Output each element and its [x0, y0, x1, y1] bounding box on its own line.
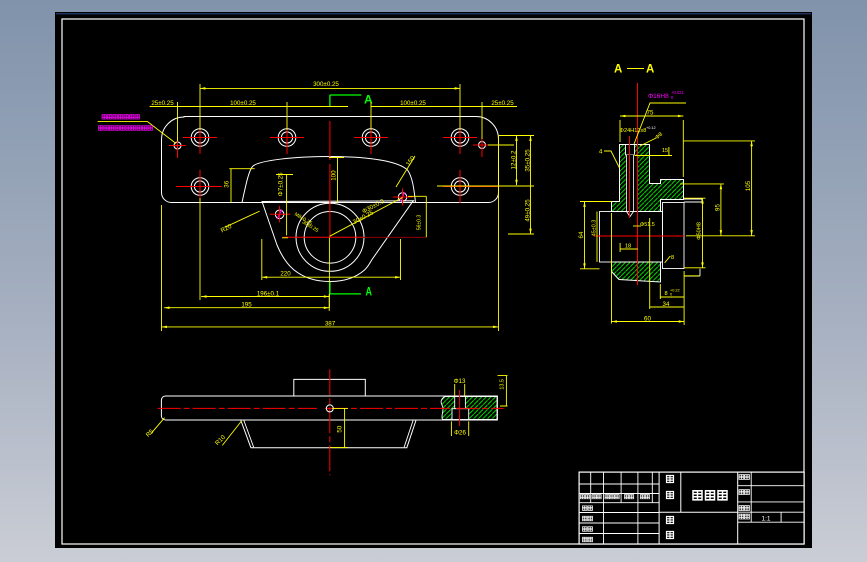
svg-text:49±0.25: 49±0.25	[525, 199, 532, 222]
svg-text:13.5: 13.5	[499, 379, 505, 390]
svg-text:Φ24H12x8: Φ24H12x8	[620, 128, 647, 134]
svg-text:36: 36	[224, 180, 231, 187]
svg-text:12±0.2: 12±0.2	[511, 150, 518, 169]
svg-text:Φ50H8: Φ50H8	[697, 222, 703, 240]
svg-text:64: 64	[578, 231, 585, 238]
svg-text:A: A	[366, 285, 373, 299]
svg-text:A: A	[614, 64, 622, 76]
svg-text:8: 8	[664, 291, 667, 297]
svg-text:34: 34	[663, 301, 670, 308]
svg-text:Φ26: Φ26	[454, 430, 466, 437]
svg-text:Φ13: Φ13	[454, 378, 466, 385]
svg-text:1:1: 1:1	[761, 515, 770, 522]
svg-text:Φ16H8: Φ16H8	[648, 93, 669, 100]
svg-text:300±0.25: 300±0.25	[313, 81, 339, 88]
svg-text:+0.12: +0.12	[646, 126, 656, 130]
svg-text:100±0.25: 100±0.25	[230, 100, 256, 107]
svg-text:25±0.25: 25±0.25	[151, 100, 174, 107]
svg-text:100±0.25: 100±0.25	[400, 100, 426, 107]
svg-text:A: A	[646, 64, 654, 76]
svg-text:Φ51.5: Φ51.5	[640, 222, 655, 228]
svg-text:95: 95	[714, 204, 721, 211]
svg-text:60: 60	[644, 315, 651, 322]
svg-text:196±0.1: 196±0.1	[257, 290, 280, 297]
svg-text:50: 50	[337, 425, 344, 432]
svg-text:18: 18	[625, 244, 631, 250]
svg-text:A: A	[364, 93, 373, 107]
svg-text:105: 105	[745, 180, 752, 191]
svg-text:195: 195	[241, 302, 252, 309]
svg-text:75: 75	[647, 110, 654, 117]
svg-text:100: 100	[331, 170, 338, 181]
svg-text:25±0.25: 25±0.25	[491, 100, 514, 107]
svg-text:15: 15	[662, 148, 668, 154]
svg-text:220: 220	[280, 271, 291, 278]
svg-text:35±0.25: 35±0.25	[525, 149, 532, 172]
svg-text:387: 387	[325, 320, 336, 327]
svg-text:Φ7±0.25: Φ7±0.25	[278, 172, 285, 196]
svg-text:8: 8	[671, 255, 674, 261]
svg-text:45±0.3: 45±0.3	[592, 220, 598, 236]
svg-text:56±0.3: 56±0.3	[417, 215, 423, 230]
svg-text:0: 0	[670, 293, 672, 297]
